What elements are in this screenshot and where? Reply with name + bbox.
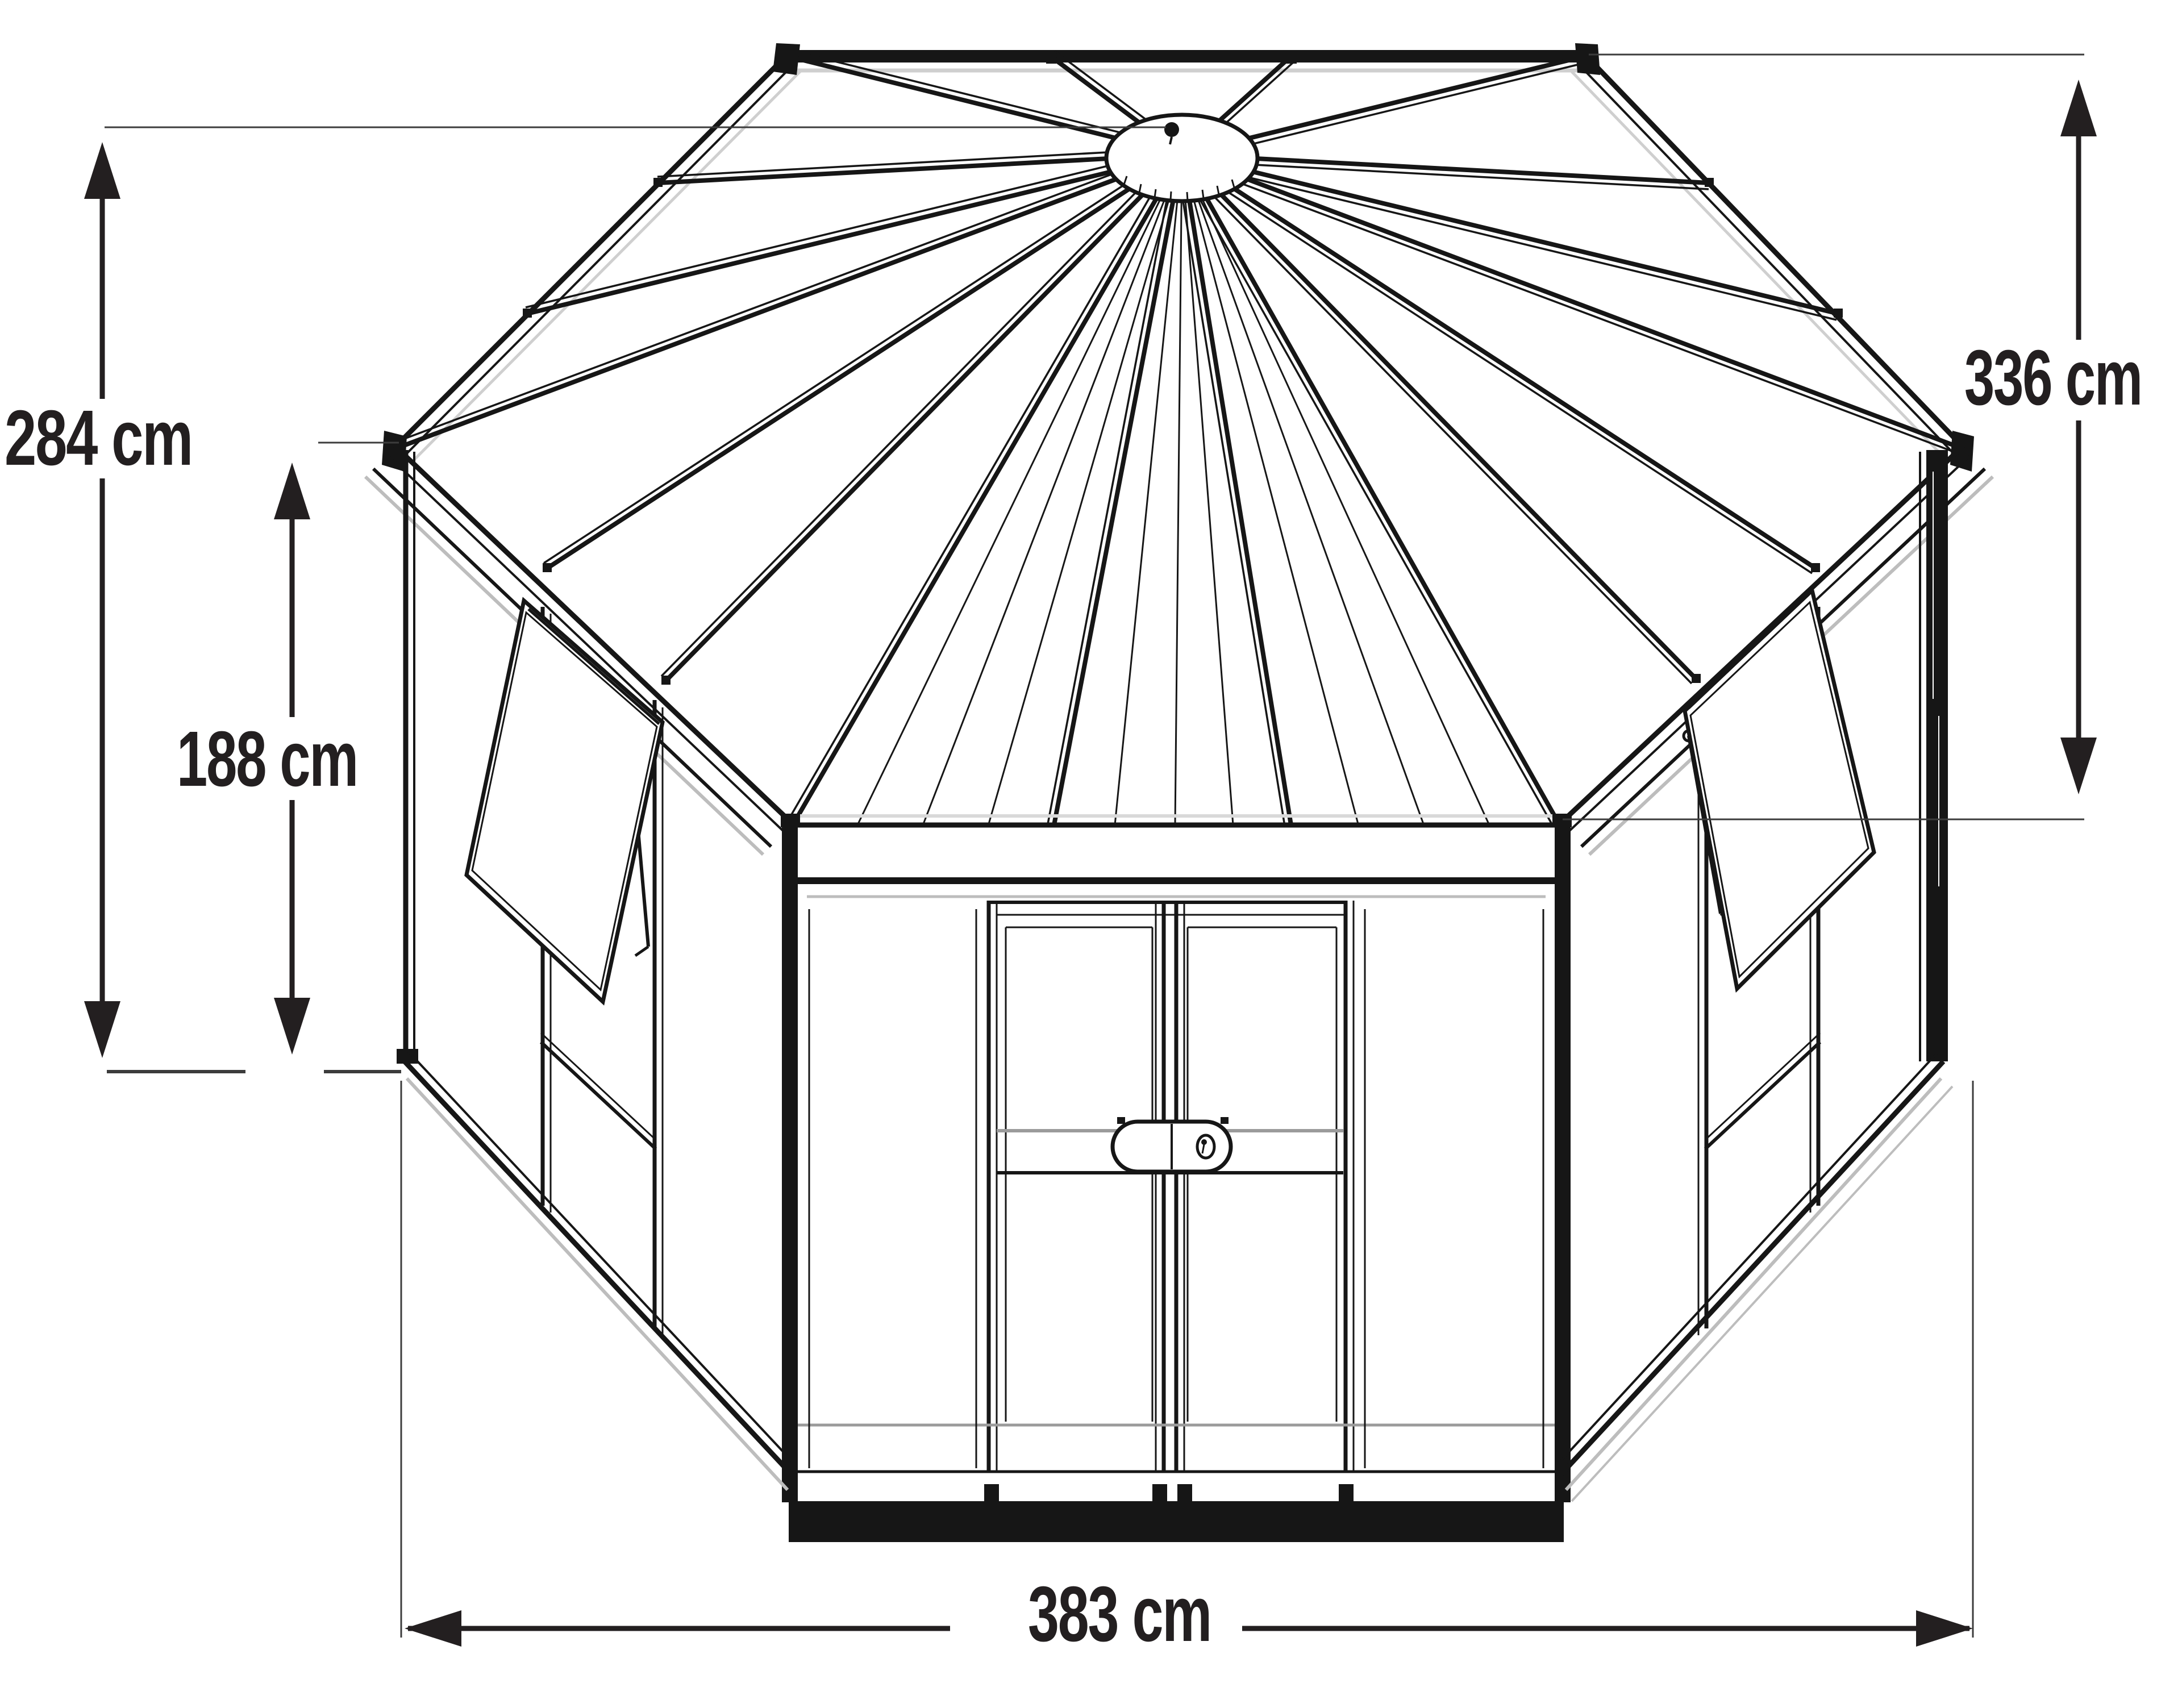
front-left-post xyxy=(782,825,798,1502)
door-handle xyxy=(1113,1117,1231,1172)
arrow-right-icon xyxy=(1916,1610,1973,1647)
dimension-wall-height: 188 cm xyxy=(177,443,399,1055)
roof-front-eave xyxy=(781,814,1572,897)
right-wall-base xyxy=(1559,1051,1952,1501)
label-depth: 336 cm xyxy=(1964,334,2142,422)
front-base xyxy=(789,1472,1564,1542)
label-width: 383 cm xyxy=(1028,1570,1211,1658)
label-wall-height: 188 cm xyxy=(177,715,357,803)
roof-back-edge xyxy=(787,50,1585,63)
left-corner-post xyxy=(397,450,418,1064)
greenhouse-dimension-diagram: 284 cm 188 cm 336 cm 383 cm xyxy=(0,0,2182,1708)
double-door xyxy=(798,901,1555,1472)
hub-finial-dot xyxy=(1164,122,1179,137)
arrow-left-icon xyxy=(405,1610,461,1647)
arrow-down-icon xyxy=(274,998,310,1055)
diagram-svg: 284 cm 188 cm 336 cm 383 cm xyxy=(0,0,2182,1708)
keyhole-icon xyxy=(1197,1135,1214,1158)
arrow-up-icon xyxy=(2060,80,2097,136)
arrow-up-icon xyxy=(274,463,310,519)
front-right-post xyxy=(1555,825,1571,1502)
arrow-down-icon xyxy=(2060,738,2097,794)
arrow-up-icon xyxy=(84,142,120,199)
left-wall-base xyxy=(405,1051,793,1490)
arrow-down-icon xyxy=(84,1001,120,1058)
label-overall-height: 284 cm xyxy=(5,394,192,482)
